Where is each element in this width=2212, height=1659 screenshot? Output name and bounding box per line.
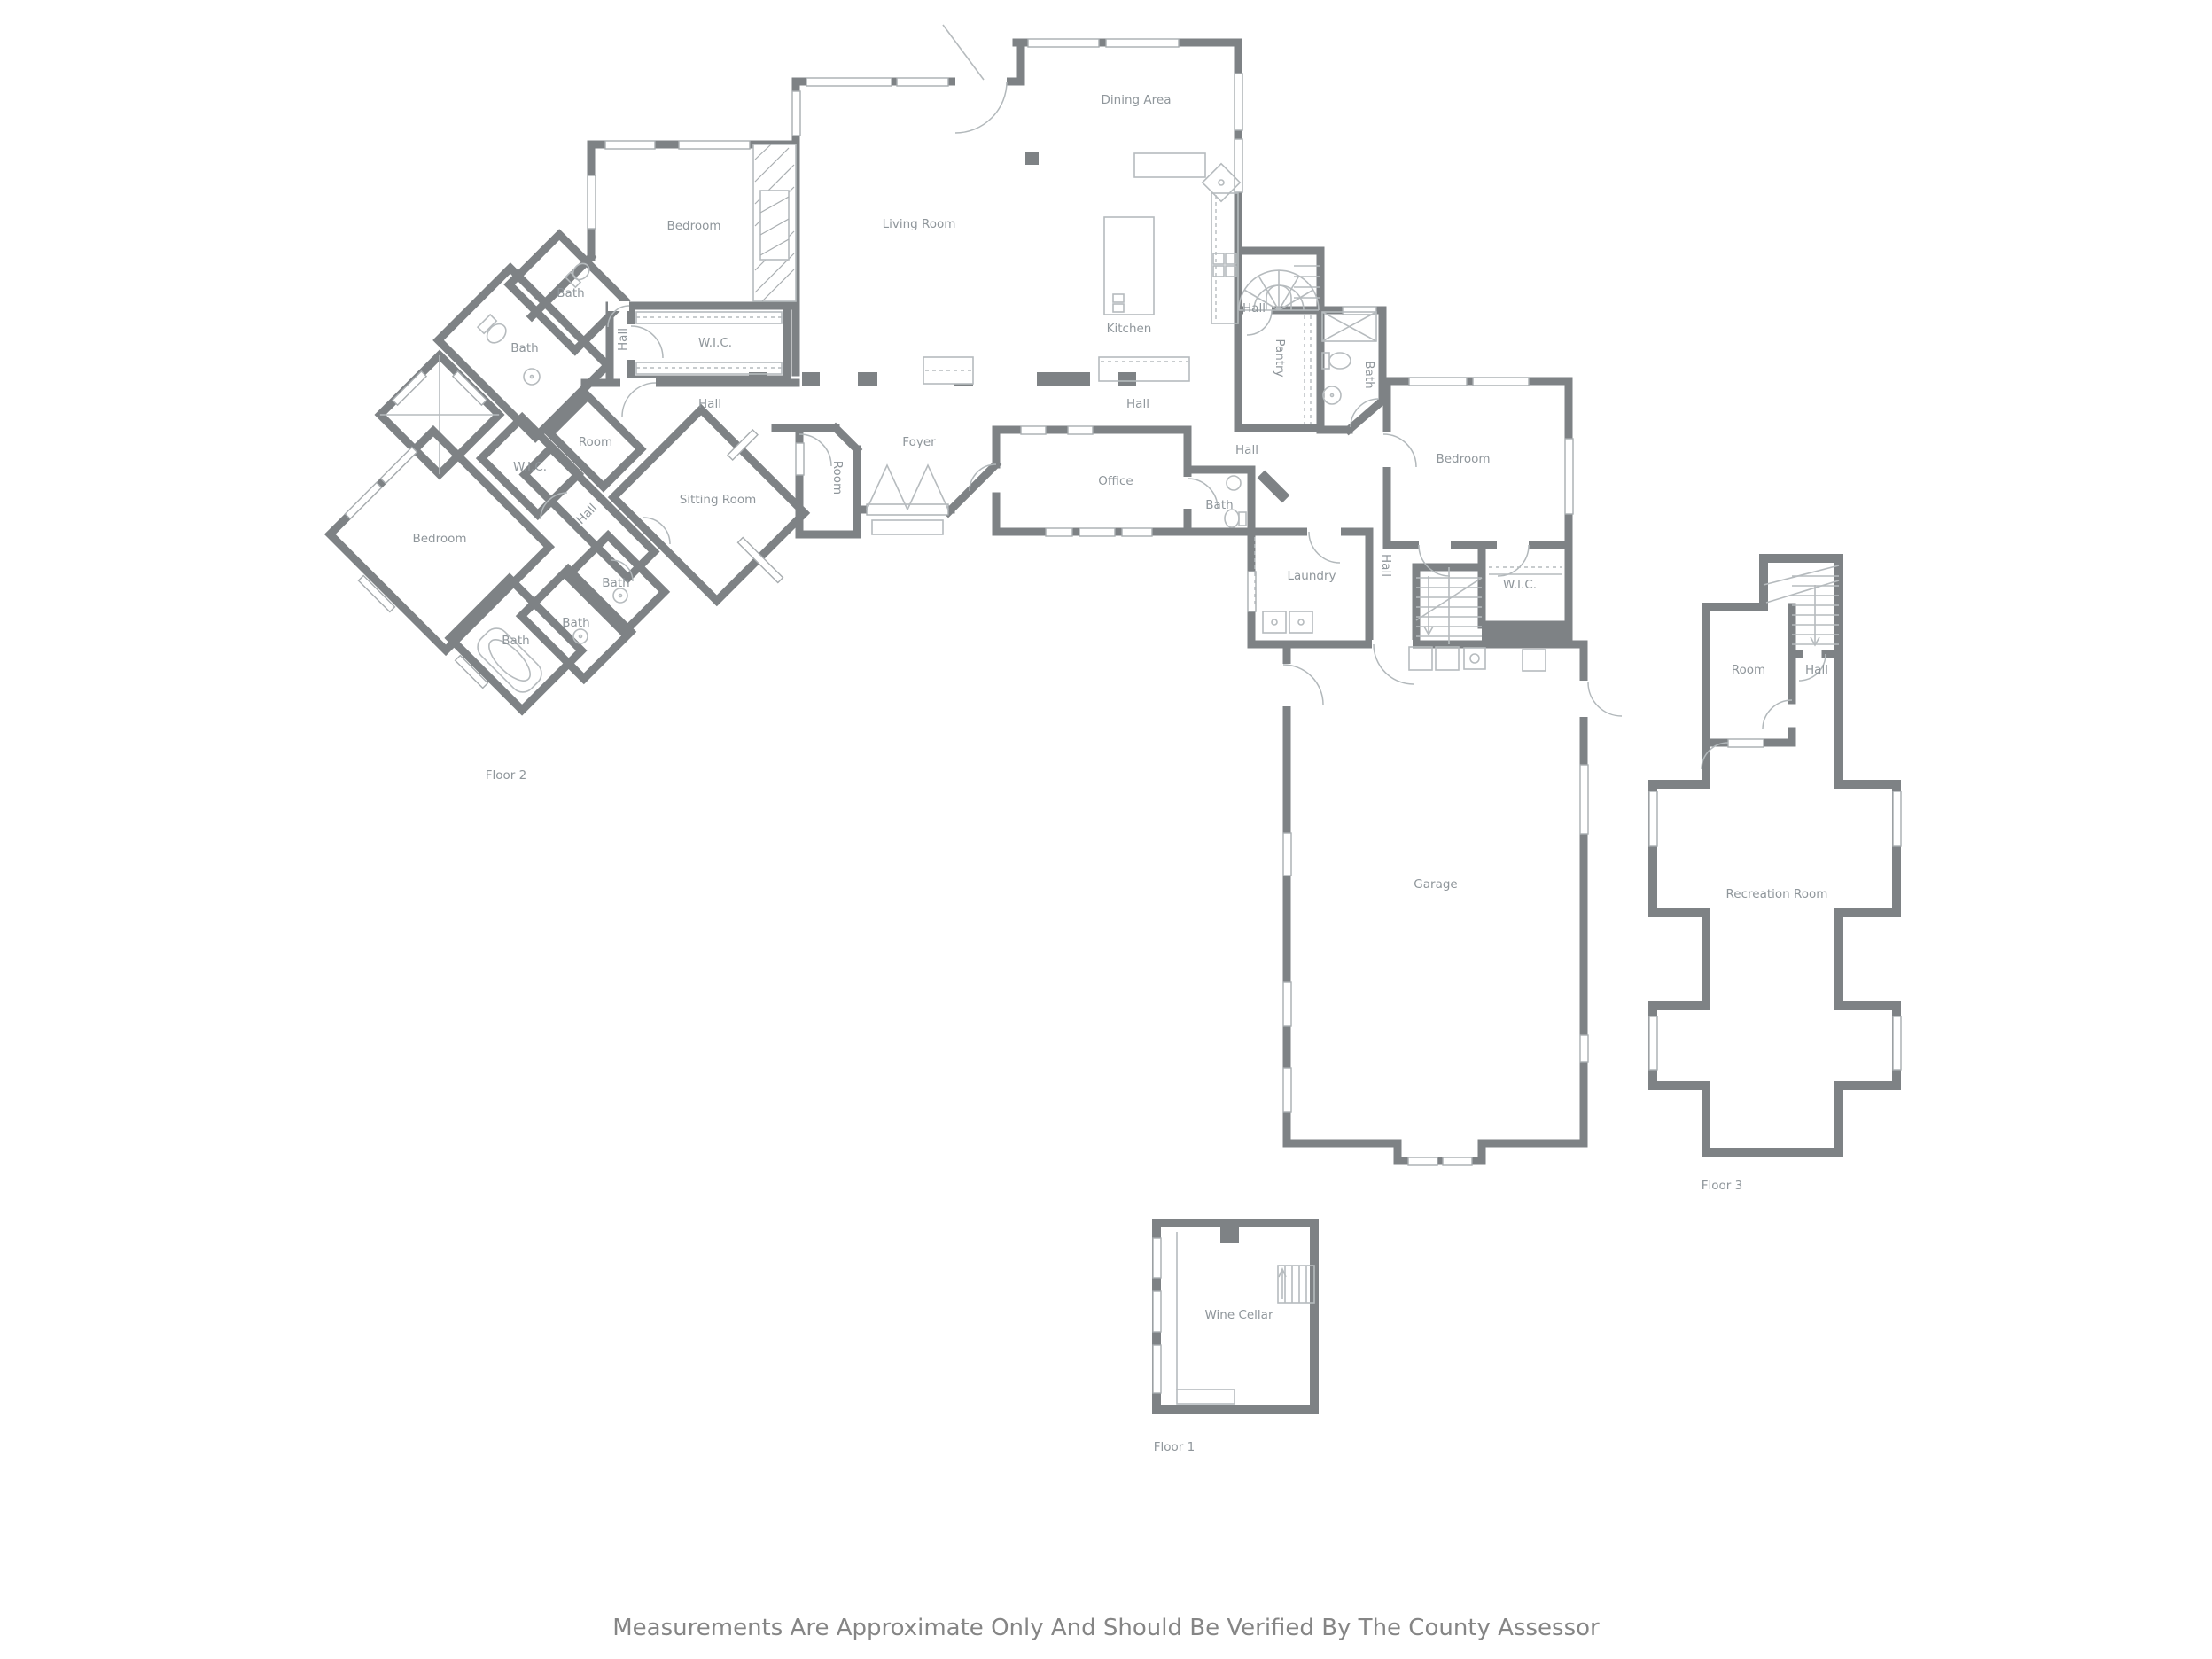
room-label: Hall — [1379, 554, 1393, 577]
room-label: Bedroom — [666, 219, 720, 233]
room-label: Sitting Room — [680, 493, 757, 507]
hall-pillars — [749, 152, 1289, 502]
room-label: Bath — [1205, 498, 1233, 512]
kitchen-fixtures — [1099, 153, 1240, 381]
room-label: W.I.C. — [1503, 578, 1537, 592]
room-label: Bath — [510, 341, 538, 355]
room-label: Bath — [562, 616, 589, 630]
floor3-envelope — [1653, 558, 1897, 1152]
room-label: Office — [1098, 474, 1133, 488]
floor1-caption: Floor 1 — [1154, 1440, 1195, 1454]
room-label: Kitchen — [1107, 322, 1152, 336]
floorplan-canvas: Dining Area Living Room Kitchen Bedroom … — [0, 0, 2212, 1659]
disclaimer-text: Measurements Are Approximate Only And Sh… — [612, 1615, 1600, 1641]
room-label: Hall — [1126, 397, 1149, 411]
room-label: Bath — [502, 634, 529, 648]
room-label: Hall — [1235, 443, 1258, 457]
room-label: Room — [830, 461, 845, 495]
room-label: Garage — [1414, 877, 1457, 892]
room-label: Hall — [1805, 663, 1828, 677]
floor2-caption: Floor 2 — [486, 768, 526, 783]
room-label: Pantry — [1273, 339, 1287, 377]
room-label: Bedroom — [412, 532, 466, 546]
floor2-walls — [532, 43, 1584, 1161]
floor2-labels: Dining Area Living Room Kitchen Bedroom … — [412, 93, 1537, 892]
floor3-stairs — [1764, 565, 1839, 645]
room-label: Room — [579, 435, 612, 449]
floor1-plan: Wine Cellar Floor 1 — [1153, 1223, 1314, 1454]
room-label: Living Room — [883, 217, 956, 231]
floor1-labels: Wine Cellar Floor 1 — [1154, 1308, 1273, 1454]
stairs-right — [1416, 567, 1482, 644]
room-label: W.I.C. — [698, 336, 732, 350]
floor3-caption: Floor 3 — [1702, 1179, 1742, 1193]
room-label: Wine Cellar — [1204, 1308, 1273, 1322]
room-label: Bath — [1362, 361, 1376, 388]
floor2-plan: Dining Area Living Room Kitchen Bedroom … — [330, 25, 1622, 1165]
winecellar-stairs — [1278, 1266, 1314, 1303]
room-label: Hall — [1242, 301, 1266, 315]
room-label: W.I.C. — [513, 460, 547, 474]
fireplace — [753, 144, 796, 301]
room-label: Room — [1732, 663, 1765, 677]
winecellar-pillar — [1220, 1223, 1239, 1243]
room-label: Bath — [602, 576, 629, 590]
floorplan-page: Dining Area Living Room Kitchen Bedroom … — [0, 0, 2212, 1659]
winecellar-windows — [1153, 1238, 1161, 1393]
room-label: Foyer — [902, 435, 936, 449]
room-label: Bath — [557, 286, 584, 300]
room-label: Dining Area — [1102, 93, 1172, 107]
room-label: Bedroom — [1436, 452, 1490, 466]
room-label: Laundry — [1287, 569, 1336, 583]
room-label: Hall — [698, 397, 721, 411]
foyer-entry — [867, 25, 984, 534]
room-label: Hall — [616, 328, 630, 351]
floor3-plan: Room Hall Recreation Room Floor 3 — [1649, 558, 1901, 1193]
room-label: Recreation Room — [1726, 887, 1828, 901]
